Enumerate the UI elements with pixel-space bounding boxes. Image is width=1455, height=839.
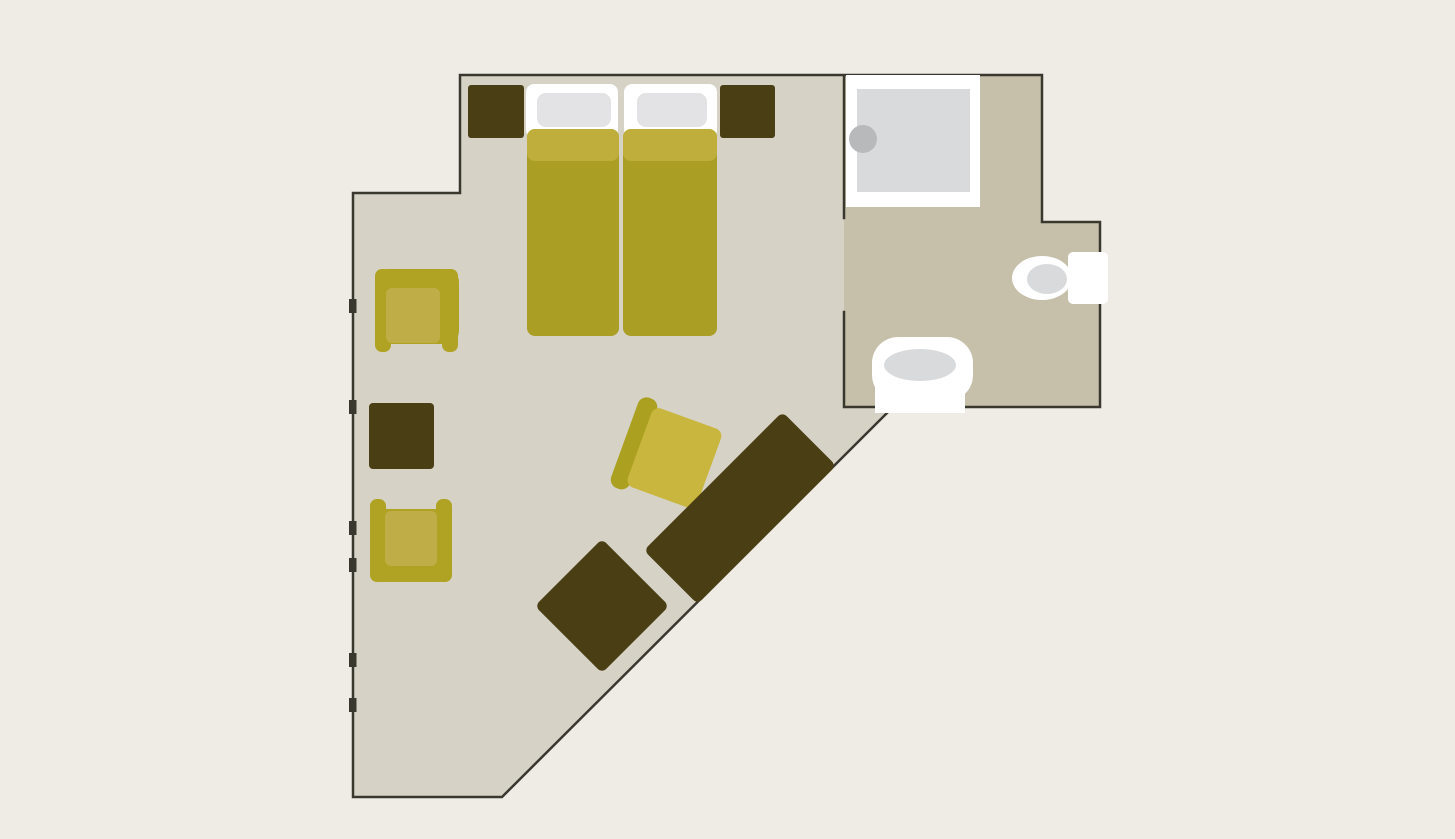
coffee-table	[369, 403, 434, 469]
armchair-arm-right	[442, 269, 458, 352]
shower-drain	[849, 125, 877, 153]
armchair-arm-right	[436, 499, 452, 582]
duvet-fold-left	[527, 129, 619, 161]
armchair-top	[375, 269, 459, 352]
toilet-tank	[1068, 252, 1108, 304]
nightstand-right	[720, 85, 775, 138]
sink-basin	[884, 349, 956, 381]
window-tick	[349, 299, 357, 313]
window-tick	[349, 698, 357, 712]
armchair-arm-left	[370, 499, 386, 582]
toilet-seat	[1027, 264, 1067, 294]
window-tick	[349, 558, 357, 572]
floor-plan-page	[0, 0, 1455, 839]
pillow-left	[537, 93, 611, 127]
armchair-bottom	[370, 499, 452, 582]
nightstand-left	[468, 85, 524, 138]
duvet-fold-right	[623, 129, 717, 161]
window-tick	[349, 521, 357, 535]
armchair-seat	[385, 511, 437, 566]
window-tick	[349, 653, 357, 667]
window-tick	[349, 400, 357, 414]
armchair-seat	[386, 288, 440, 343]
floor-plan	[0, 0, 1455, 839]
pillow-right	[637, 93, 707, 127]
